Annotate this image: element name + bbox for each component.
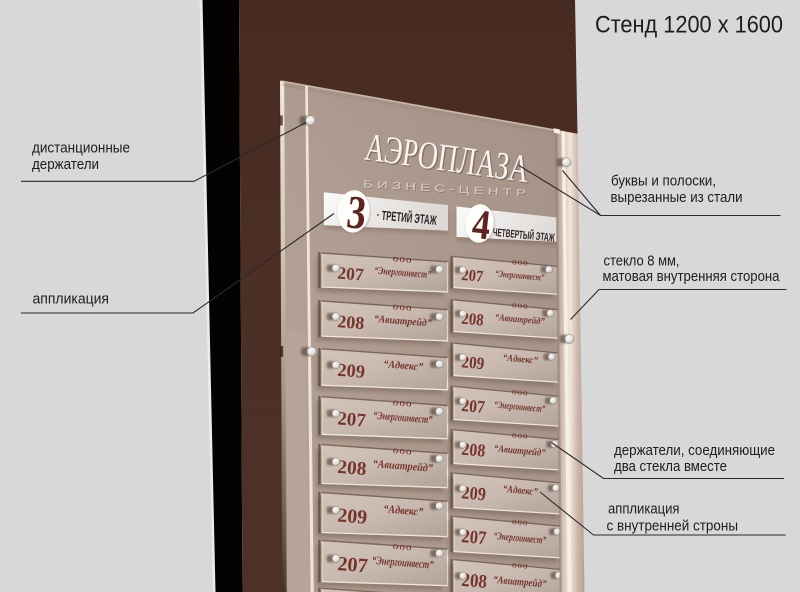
svg-text:матовая внутренняя сторона: матовая внутренняя сторона: [603, 268, 780, 285]
svg-text:буквы и полоски,: буквы и полоски,: [611, 173, 716, 190]
svg-text:207: 207: [337, 553, 369, 577]
svg-text:209: 209: [461, 481, 487, 504]
svg-text:ООО: ООО: [512, 302, 529, 311]
svg-text:ООО: ООО: [392, 399, 412, 409]
svg-text:держатели: держатели: [32, 156, 99, 173]
svg-text:ООО: ООО: [392, 543, 412, 553]
svg-text:209: 209: [337, 504, 368, 528]
svg-text:ООО: ООО: [512, 519, 529, 528]
svg-text:Стенд 1200 х 1600: Стенд 1200 х 1600: [595, 12, 783, 39]
svg-text:аппликация: аппликация: [608, 501, 680, 518]
svg-text:207: 207: [337, 263, 365, 285]
svg-text:ООО: ООО: [392, 447, 412, 457]
svg-text:стекло 8 мм,: стекло 8 мм,: [604, 253, 680, 270]
svg-text:207: 207: [337, 408, 367, 431]
svg-text:207: 207: [461, 525, 488, 548]
svg-text:ООО: ООО: [392, 255, 412, 265]
svg-text:208: 208: [461, 569, 488, 592]
svg-text:ООО: ООО: [512, 259, 529, 268]
svg-text:ООО: ООО: [512, 562, 529, 571]
svg-text:два стекла вместе: два стекла вместе: [614, 458, 727, 475]
svg-text:209: 209: [337, 360, 366, 382]
svg-text:аппликация: аппликация: [33, 291, 110, 308]
svg-text:держатели, соединяющие: держатели, соединяющие: [614, 442, 775, 459]
svg-text:вырезанные из стали: вырезанные из стали: [611, 189, 743, 206]
svg-text:дистанционные: дистанционные: [32, 140, 130, 157]
svg-text:ООО: ООО: [392, 303, 412, 313]
svg-text:ООО: ООО: [512, 432, 529, 441]
svg-text:ООО: ООО: [512, 389, 529, 398]
svg-text:208: 208: [337, 457, 368, 480]
svg-text:с внутренней строны: с внутренней строны: [607, 518, 739, 535]
svg-text:208: 208: [337, 311, 365, 333]
